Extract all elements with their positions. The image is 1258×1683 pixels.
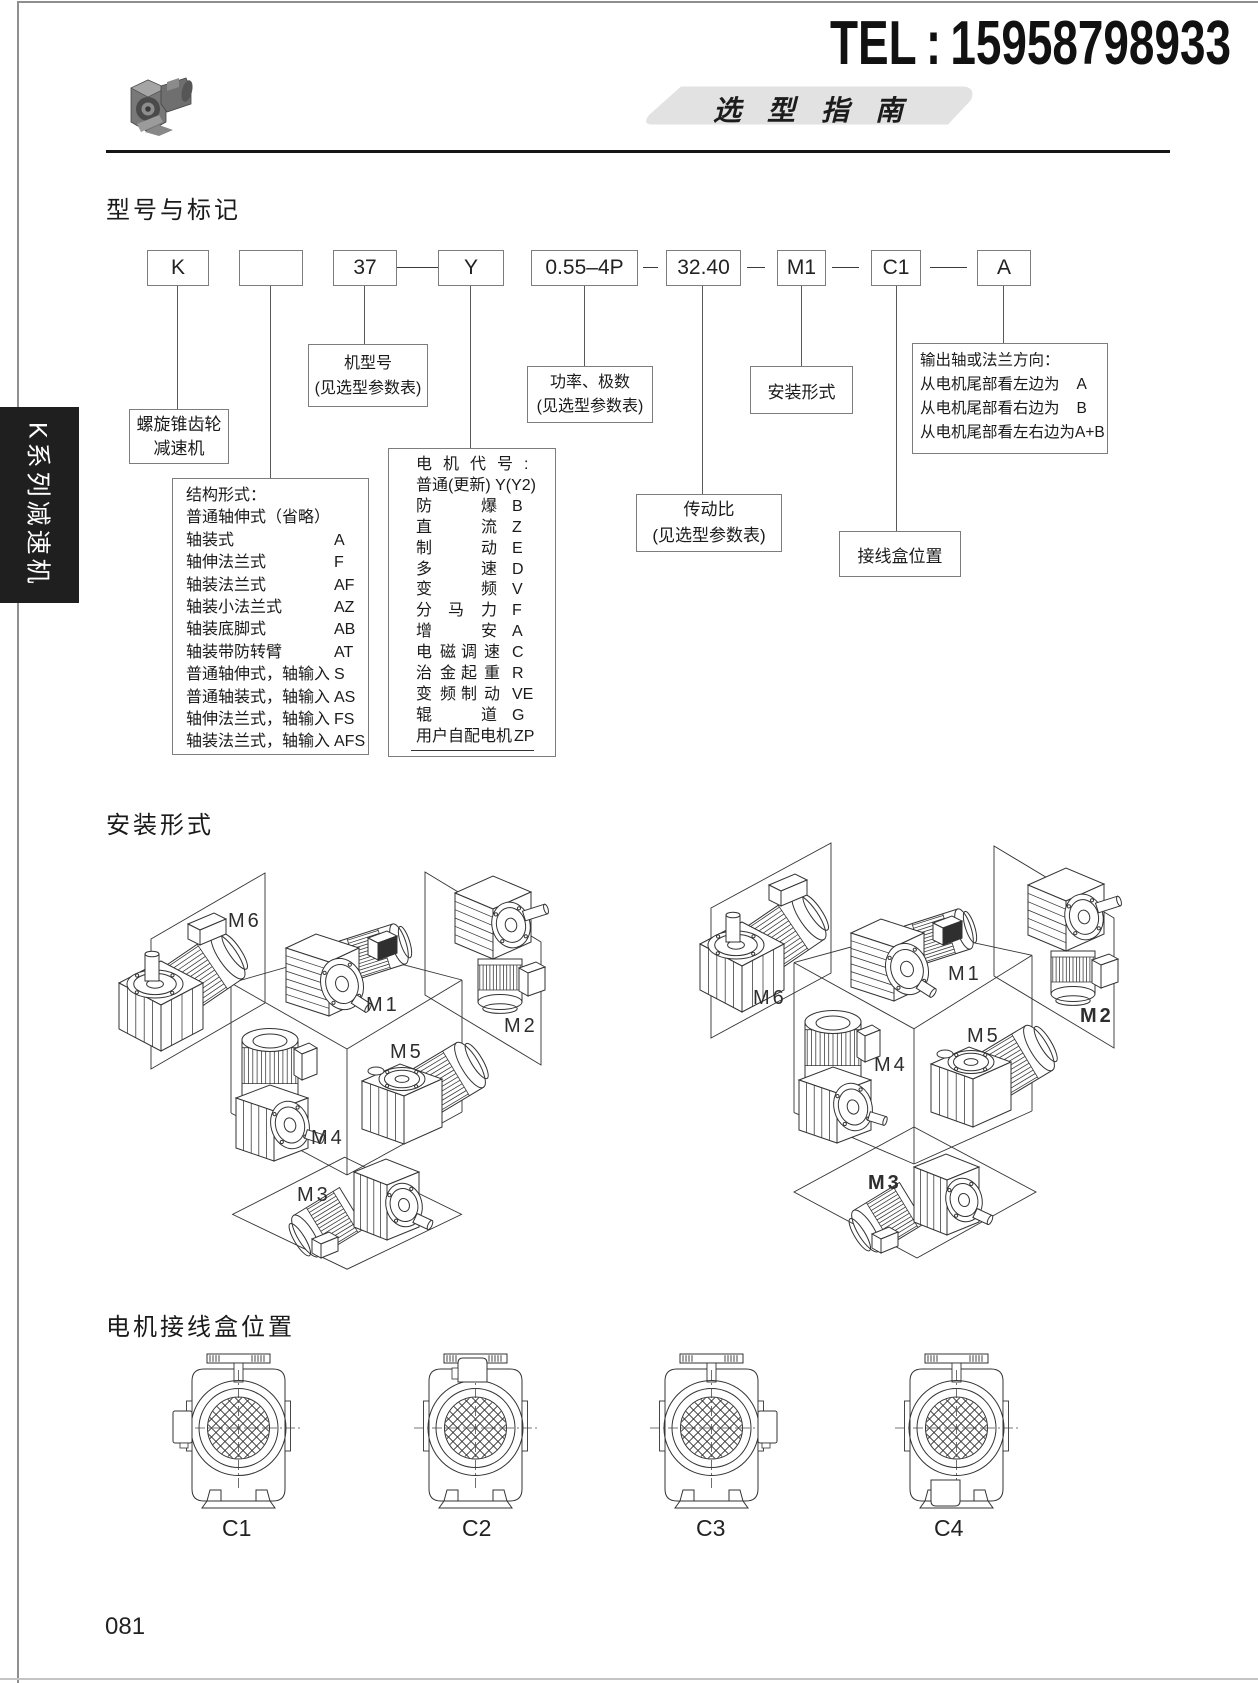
svg-text:M5: M5 — [390, 1041, 424, 1063]
svg-text:M4: M4 — [311, 1127, 345, 1149]
svg-text:M4: M4 — [874, 1054, 908, 1076]
svg-text:M2: M2 — [504, 1015, 538, 1037]
svg-text:M3: M3 — [297, 1184, 331, 1206]
svg-text:M5: M5 — [967, 1025, 1001, 1047]
svg-text:M3: M3 — [868, 1172, 902, 1194]
svg-text:M1: M1 — [948, 963, 982, 985]
svg-text:M2: M2 — [1080, 1005, 1114, 1027]
svg-text:M6: M6 — [228, 910, 262, 932]
svg-text:M6: M6 — [753, 987, 787, 1009]
svg-text:M1: M1 — [366, 994, 400, 1016]
